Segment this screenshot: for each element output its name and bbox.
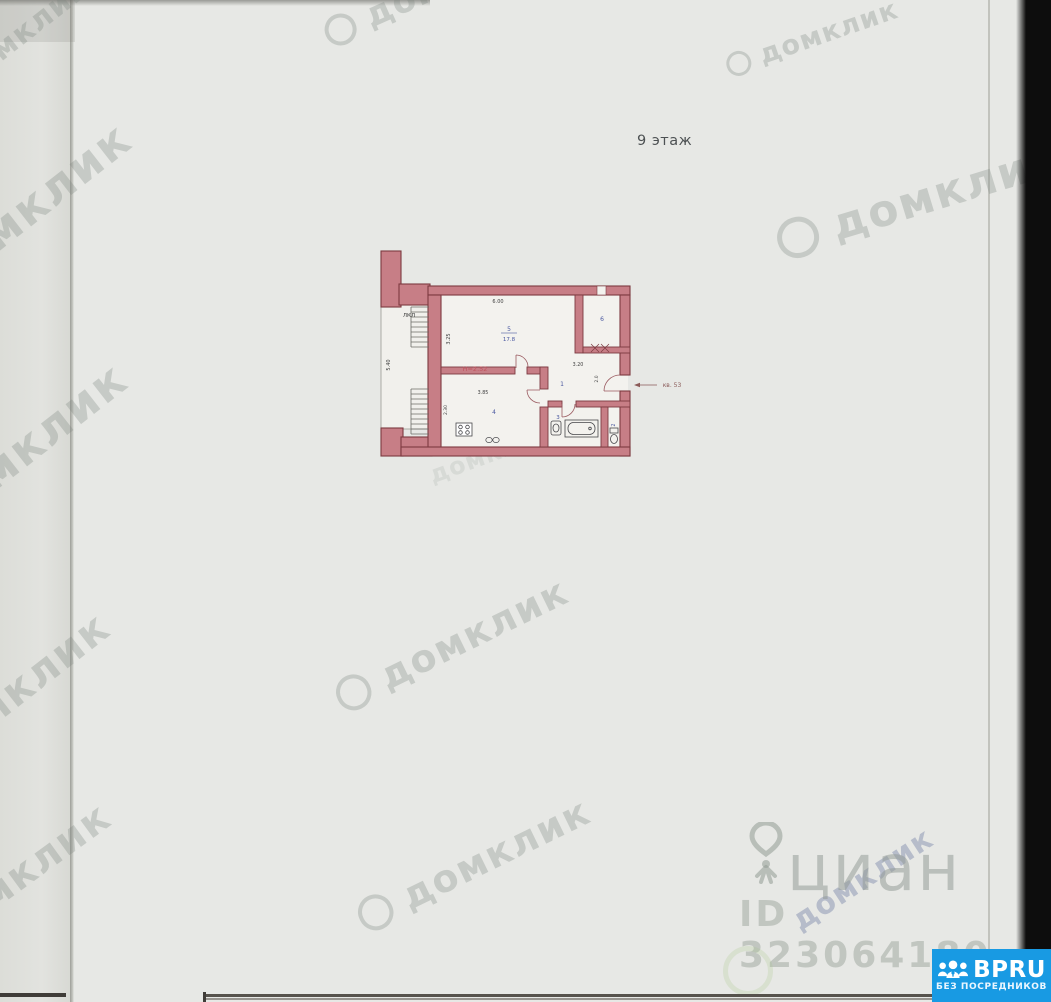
table-line xyxy=(0,993,66,997)
faint-logo-ring xyxy=(723,946,773,996)
table-line xyxy=(206,994,932,997)
dim-kitchen-depth: 2.30 xyxy=(443,405,449,415)
domclick-watermark: домклик xyxy=(318,0,542,54)
dim-hall-depth: 2.0 xyxy=(594,375,600,382)
domclick-watermark: домклик xyxy=(328,569,575,720)
domclick-watermark-text: домклик xyxy=(358,0,541,36)
dim-living-depth: 3.25 xyxy=(446,333,452,344)
cian-watermark: циан ID 323064180 xyxy=(735,818,995,948)
room-3-number: 3 xyxy=(556,415,560,421)
room-5-area: 17.8 xyxy=(503,337,516,343)
bpru-tagline: БЕЗ ПОСРЕДНИКОВ xyxy=(936,983,1047,992)
bpru-people-icon xyxy=(937,959,969,982)
document-photo: домклик домклик домклик домклик домклик … xyxy=(0,0,1051,1002)
dim-kitchen-width: 3.85 xyxy=(478,390,489,396)
ceiling-height-label: H=2.52 xyxy=(463,365,488,373)
bpru-brand-text: BPRU xyxy=(973,959,1046,982)
floor-plan: ЛКЛ 5.40 3.25 6.00 3.20 2.0 3.85 2.30 5 … xyxy=(375,242,710,462)
domclick-logo-icon xyxy=(352,889,399,936)
domclick-logo-icon xyxy=(330,669,377,716)
domclick-watermark: домклик xyxy=(771,133,1051,268)
bpru-badge: BPRU БЕЗ ПОСРЕДНИКОВ xyxy=(932,949,1051,1002)
domclick-logo-icon xyxy=(319,8,362,51)
dim-top-width: 6.00 xyxy=(492,299,503,305)
room-5-number: 5 xyxy=(507,326,511,333)
room-1-number: 1 xyxy=(560,381,564,388)
floor-label: 9 этаж xyxy=(637,133,692,149)
table-line xyxy=(206,998,932,1000)
apartment-pointer: кв. 53 xyxy=(634,382,681,389)
vent-shaft xyxy=(597,286,606,295)
domclick-logo-icon xyxy=(723,47,755,79)
room-4-number: 4 xyxy=(492,409,496,416)
dim-hall-width: 3.20 xyxy=(573,362,584,368)
domclick-logo-icon xyxy=(772,211,824,263)
domclick-watermark-text: домклик xyxy=(372,569,575,698)
stairwell-label: ЛКЛ xyxy=(403,313,415,319)
domclick-watermark-text: домклик xyxy=(394,789,597,918)
room-6-number: 6 xyxy=(600,316,604,323)
cian-logo-icon xyxy=(749,822,783,884)
dim-stair-depth: 5.40 xyxy=(386,359,392,370)
room-2-number: 2 xyxy=(611,423,617,426)
photo-black-edge xyxy=(1016,0,1051,1002)
domclick-watermark: домклик xyxy=(722,0,902,82)
apartment-label: кв. 53 xyxy=(663,382,682,389)
domclick-watermark: домклик xyxy=(350,789,597,940)
domclick-watermark-text: домклик xyxy=(755,0,903,71)
stove-icon xyxy=(456,423,472,436)
